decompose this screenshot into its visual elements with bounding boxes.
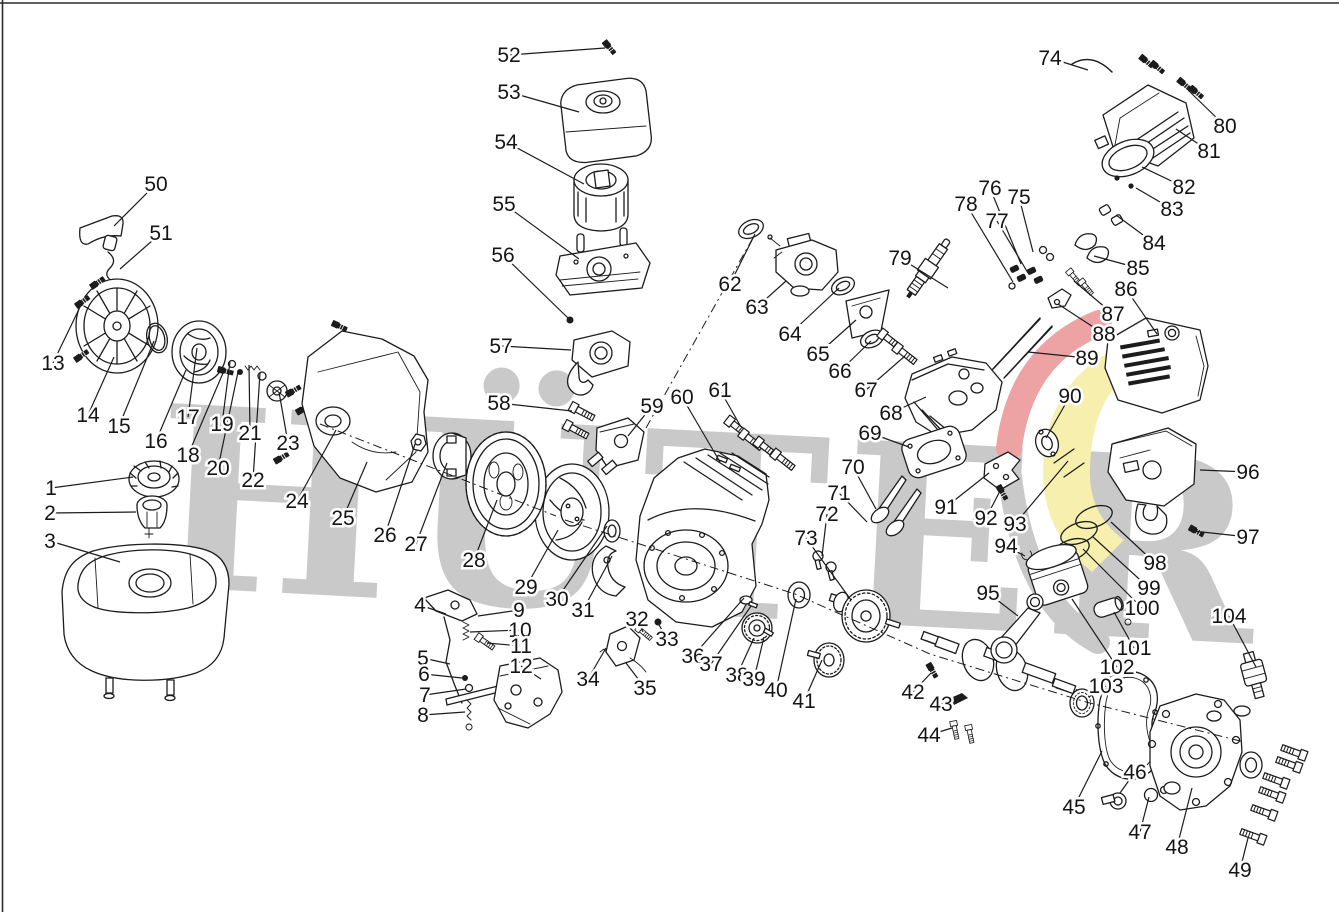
starter-cup-washer	[604, 520, 620, 542]
parts-diagram: HÜTER	[0, 0, 1339, 912]
callout-18: 18	[176, 444, 199, 467]
stud-nut	[1128, 183, 1133, 188]
diagram-canvas: HÜTER	[0, 0, 1339, 912]
callout-42: 42	[901, 681, 924, 704]
callout-94: 94	[994, 535, 1018, 558]
callout-69: 69	[858, 422, 881, 445]
callout-57: 57	[489, 335, 512, 358]
starter-pulley	[172, 321, 226, 383]
callout-72: 72	[815, 503, 838, 526]
callout-71: 71	[827, 482, 850, 505]
callout-30: 30	[545, 588, 568, 611]
callout-28: 28	[462, 549, 485, 572]
callout-63: 63	[745, 296, 768, 319]
callout-46: 46	[1123, 761, 1146, 784]
callout-79: 79	[888, 247, 911, 270]
callout-55: 55	[492, 193, 515, 216]
nut	[462, 675, 468, 681]
callout-67: 67	[854, 379, 877, 402]
callout-98: 98	[1143, 552, 1166, 575]
callout-84: 84	[1142, 232, 1166, 255]
callout-3: 3	[44, 530, 56, 553]
sealing-washer	[1145, 789, 1158, 802]
callout-13: 13	[41, 352, 64, 375]
leader-line-1	[51, 477, 133, 488]
callout-22: 22	[241, 469, 264, 492]
callout-54: 54	[494, 131, 518, 154]
callout-61: 61	[708, 379, 731, 402]
callout-41: 41	[792, 690, 815, 713]
crankcase-cover	[1149, 694, 1243, 810]
callout-25: 25	[331, 507, 354, 530]
callout-19: 19	[210, 413, 233, 436]
callout-32: 32	[625, 608, 648, 631]
callout-49: 49	[1228, 859, 1251, 882]
callout-75: 75	[1007, 186, 1030, 209]
callout-33: 33	[655, 628, 678, 651]
callout-80: 80	[1213, 115, 1236, 138]
air-filter-base	[556, 228, 650, 295]
callout-78: 78	[954, 193, 977, 216]
callout-100: 100	[1124, 597, 1159, 620]
callout-48: 48	[1165, 836, 1188, 859]
callout-96: 96	[1236, 461, 1259, 484]
callout-74: 74	[1038, 47, 1062, 70]
callout-37: 37	[699, 653, 722, 676]
callout-95: 95	[976, 582, 999, 605]
callout-1: 1	[45, 477, 57, 500]
oil-drain-plug	[1101, 793, 1126, 809]
leader-line-7	[425, 689, 466, 695]
intake-gasket	[736, 216, 767, 242]
callout-97: 97	[1236, 526, 1259, 549]
callout-20: 20	[206, 457, 229, 480]
fuel-tank	[62, 544, 229, 700]
callout-88: 88	[1092, 323, 1115, 346]
flywheel	[466, 432, 546, 536]
callout-45: 45	[1062, 796, 1085, 819]
leader-line-8	[423, 712, 465, 715]
callout-47: 47	[1128, 821, 1151, 844]
rocker-pivots	[1099, 204, 1124, 226]
callout-86: 86	[1114, 278, 1137, 301]
recoil-starter-housing	[74, 276, 158, 373]
air-filter-element	[574, 164, 628, 231]
callout-60: 60	[670, 386, 693, 409]
callout-51: 51	[149, 222, 172, 245]
callout-81: 81	[1197, 140, 1220, 163]
callout-2: 2	[44, 502, 56, 525]
callout-93: 93	[1003, 513, 1026, 536]
callout-12: 12	[509, 655, 532, 678]
carburetor	[768, 233, 838, 296]
callout-83: 83	[1160, 198, 1183, 221]
callout-64: 64	[778, 323, 802, 346]
callout-90: 90	[1058, 385, 1081, 408]
callout-23: 23	[276, 432, 299, 455]
callout-15: 15	[107, 415, 130, 438]
callout-56: 56	[491, 244, 514, 267]
air-filter-cover	[559, 77, 652, 164]
leader-line-52	[509, 48, 605, 55]
callout-8: 8	[417, 704, 429, 727]
callout-58: 58	[487, 392, 510, 415]
callout-31: 31	[571, 599, 594, 622]
callout-92: 92	[974, 507, 997, 530]
stud-nut	[1114, 175, 1119, 180]
sensor-washer	[1234, 706, 1250, 716]
callout-39: 39	[742, 668, 765, 691]
callout-14: 14	[76, 404, 100, 427]
one-way-clutch	[433, 433, 471, 479]
fuel-cap	[129, 461, 179, 497]
washer	[466, 685, 473, 692]
callout-6: 6	[418, 663, 430, 686]
callout-34: 34	[576, 668, 600, 691]
callout-82: 82	[1172, 176, 1195, 199]
case-bolt	[950, 720, 961, 739]
breather-tube	[1072, 60, 1112, 73]
callout-77: 77	[985, 210, 1008, 233]
pivot-bolt	[1077, 278, 1094, 296]
callout-89: 89	[1075, 347, 1098, 370]
callout-52: 52	[497, 44, 520, 67]
bearing-main	[788, 582, 810, 608]
cover-bearing	[1240, 752, 1262, 778]
leader-line-2	[50, 512, 136, 513]
callout-53: 53	[497, 81, 520, 104]
callout-103: 103	[1088, 675, 1123, 698]
callout-66: 66	[828, 360, 851, 383]
callout-59: 59	[640, 395, 663, 418]
callout-16: 16	[144, 430, 167, 453]
callout-62: 62	[718, 273, 741, 296]
callout-21: 21	[238, 422, 261, 445]
callout-17: 17	[176, 406, 199, 429]
callout-70: 70	[841, 456, 864, 479]
callout-29: 29	[514, 576, 537, 599]
callout-91: 91	[934, 496, 957, 519]
callout-50: 50	[144, 173, 167, 196]
callout-73: 73	[794, 527, 817, 550]
control-bracket	[446, 658, 562, 728]
callout-85: 85	[1126, 257, 1149, 280]
callout-4: 4	[414, 594, 426, 617]
callout-44: 44	[917, 724, 941, 747]
head-stud	[892, 342, 919, 366]
callout-24: 24	[285, 490, 309, 513]
callout-65: 65	[806, 343, 829, 366]
governor-spring	[466, 700, 472, 730]
callout-104: 104	[1211, 605, 1246, 628]
callout-35: 35	[633, 677, 656, 700]
callout-40: 40	[764, 679, 787, 702]
callout-26: 26	[373, 524, 396, 547]
case-bolt	[965, 724, 976, 743]
callout-27: 27	[404, 533, 427, 556]
starter-ratchet	[267, 381, 287, 401]
air-filter-cover-screw	[603, 40, 617, 55]
callout-76: 76	[978, 177, 1001, 200]
callout-43: 43	[929, 693, 952, 716]
lever-nut	[655, 619, 662, 626]
callout-68: 68	[879, 402, 902, 425]
